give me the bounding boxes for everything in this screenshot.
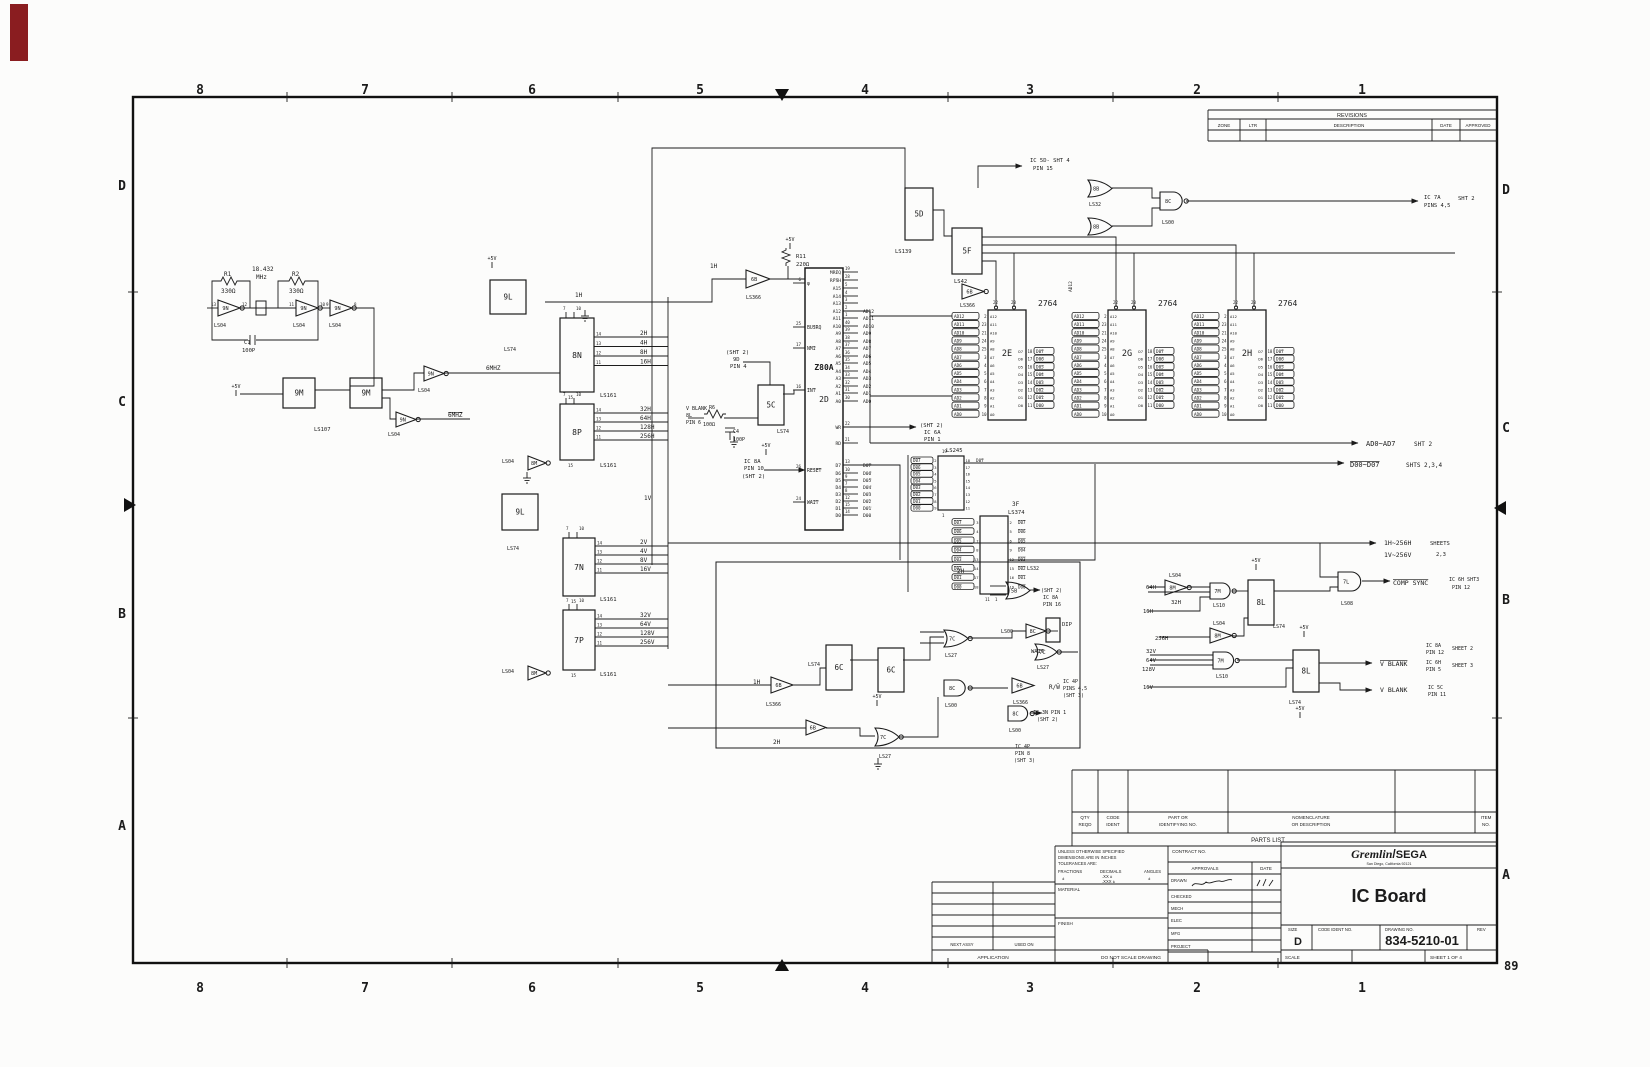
z80-r-A15: A15	[833, 286, 842, 292]
gate-8C-nand: 8C	[1160, 192, 1188, 210]
ic-ref-6C: 6C	[886, 666, 895, 675]
addr-2E-AD9: AD9	[954, 338, 962, 344]
addr-2E-AD11: AD11	[954, 322, 965, 328]
sheet-label: SHEET 1 OF 4	[1430, 955, 1462, 961]
wire	[350, 308, 374, 386]
pin-2E-9: 9	[984, 404, 987, 409]
gate-8B-or: 8B	[1088, 180, 1112, 197]
pinlabel-2E-A4: A4	[990, 379, 995, 384]
pinlabel-2H-D1: D1	[1258, 395, 1263, 400]
addr-2G-AD3: AD3	[1074, 387, 1082, 393]
z80-r-D3: D3	[835, 492, 841, 498]
contract-label: CONTRACT NO.	[1172, 849, 1206, 854]
pin-2G-23: 23	[1102, 322, 1107, 327]
gate-ref-7L: 7L	[1343, 580, 1349, 586]
label--sht-2-: (SHT 2)	[742, 474, 765, 480]
ls245-pin-14: 14	[966, 485, 971, 490]
z80-r-A11: A11	[833, 316, 842, 322]
label-128v: 128V	[1142, 667, 1156, 673]
pin-2E-25: 25	[982, 347, 987, 352]
z80-pin-12: 12	[845, 495, 850, 500]
gate-8M-inv: 8M	[528, 456, 550, 470]
z80-pin-37: 37	[845, 342, 850, 347]
label-dip: DIP	[1062, 622, 1073, 628]
gate-body	[296, 300, 318, 316]
z80-bus-D05: D05	[863, 478, 872, 484]
tolerance-angles-pm: ±	[1148, 876, 1151, 881]
z80-pin-1: 1	[845, 312, 848, 317]
label-ls74: LS74	[504, 347, 516, 353]
pin-2E-15: 15	[1028, 372, 1033, 377]
pinlabel-2H-A8: A8	[1230, 347, 1235, 352]
zone-top-6: 6	[528, 83, 536, 98]
z80-pin-25: 25	[796, 321, 802, 326]
pinlabel-2G-A5: A5	[1110, 371, 1115, 376]
ls245-pin-16: 16	[966, 472, 971, 477]
ls374-pin-11: 11	[985, 597, 990, 602]
label-2764: 2764	[1278, 299, 1297, 308]
gate-bubble	[1235, 658, 1239, 662]
label-ic-6h-sht3: IC 6H SHT3	[1449, 577, 1479, 583]
gate-ref-8B: 8B	[1093, 187, 1099, 193]
pin-7N-11: 11	[597, 568, 603, 573]
ls245-l-D02: D02	[913, 492, 921, 497]
label-pin-6: PIN 6	[686, 420, 701, 426]
tolerance-angles: ANGLES	[1144, 869, 1161, 874]
frame-arrow-top	[775, 89, 789, 101]
data-2G-D07: D07	[1156, 349, 1164, 355]
z80-bus-AD3: AD3	[863, 376, 872, 382]
z80-pin-16: 16	[796, 384, 802, 389]
pin-2G-2: 2	[1104, 314, 1107, 319]
label-pin-16: PIN 16	[1043, 602, 1061, 608]
data-2H-D05: D05	[1276, 364, 1284, 370]
z80-pin-14: 14	[845, 509, 850, 514]
ls374-pin-4: 4	[976, 529, 979, 534]
z80-pin-13: 13	[845, 459, 850, 464]
data-2E-D06: D06	[1036, 357, 1044, 363]
pin-2G-3: 3	[1104, 355, 1107, 360]
addr-2E-AD0: AD0	[954, 412, 962, 418]
pin-8P-11: 11	[596, 435, 602, 440]
z80-bus-AD12: AD12	[863, 309, 874, 315]
ic-ref-9L: 9L	[515, 508, 525, 517]
addr-2E-AD8: AD8	[954, 347, 962, 353]
z80-bus-D06: D06	[863, 471, 872, 477]
ic-ref-8N: 8N	[572, 351, 582, 360]
drawn-date-mark	[1257, 879, 1273, 886]
ls374-pin-13: 13	[974, 557, 979, 562]
pinlabel-2G-D3: D3	[1138, 380, 1143, 385]
pinlabel-2G-D2: D2	[1138, 388, 1143, 393]
label-pin-10: PIN 10	[744, 466, 764, 472]
label-330-: 330Ω	[221, 288, 236, 295]
z80-pin-36: 36	[845, 350, 850, 355]
label-mhz: MHz	[256, 274, 267, 281]
label-ls27: LS27	[879, 754, 891, 760]
gate-body	[771, 677, 793, 693]
ls245-l-D04: D04	[913, 478, 921, 483]
ls245-l-D00: D00	[913, 506, 921, 511]
label--sht-2-: (SHT 2)	[1041, 588, 1062, 594]
z80-bus-D02: D02	[863, 499, 872, 505]
label-3f: 3F	[1012, 501, 1020, 508]
label-256h: 256H	[1155, 636, 1168, 642]
gate-8C-nand: 8C	[944, 680, 972, 696]
gate-7M-nand: 7M	[1210, 583, 1236, 599]
gate-8M-inv: 8M	[1210, 628, 1236, 643]
gate-ref-8M: 8M	[531, 461, 537, 467]
data-2G-D06: D06	[1156, 357, 1164, 363]
addr-2G-AD11: AD11	[1074, 322, 1085, 328]
row-mfg: MFG	[1171, 931, 1180, 936]
label-ls74: LS74	[1289, 700, 1301, 706]
pin-2H-8: 8	[1224, 396, 1227, 401]
ic-ref-6C: 6C	[834, 663, 843, 672]
pinlabel-2E-D0: D0	[1018, 403, 1023, 408]
ic-box	[1046, 618, 1060, 642]
pinlabel-2H-A6: A6	[1230, 363, 1235, 368]
pinlabel-2H-D3: D3	[1258, 380, 1263, 385]
gate-ref-8C: 8C	[1165, 199, 1171, 205]
label-pin-12: PIN 12	[1426, 650, 1444, 656]
pin-2H-5: 5	[1224, 371, 1227, 376]
label-c1: C1	[244, 340, 251, 346]
label-ic-8a: IC 8A	[1426, 643, 1441, 649]
label-8l: 8L	[686, 413, 692, 419]
pin-2G-6: 6	[1104, 379, 1107, 384]
ls245-l-D03: D03	[913, 485, 921, 490]
data-2H-D06: D06	[1276, 357, 1284, 363]
label-pin-15: PIN 15	[1033, 166, 1053, 172]
pin-7P-7: 7	[566, 598, 569, 603]
ls374-pin-18: 18	[974, 584, 979, 589]
label-ls366: LS366	[1013, 700, 1028, 706]
label-2h: 2H	[773, 739, 781, 746]
pinlabel-2G-A8: A8	[1110, 347, 1115, 352]
label-ls74: LS74	[777, 429, 789, 435]
approvals-date-label: DATE	[1260, 866, 1272, 871]
pinlabel-2G-D4: D4	[1138, 372, 1143, 377]
z80-pin-34: 34	[845, 365, 850, 370]
ls245-pin-5: 5	[934, 478, 936, 483]
pin-8N-7: 7	[563, 306, 566, 311]
pinlabel-2E-A10: A10	[990, 330, 998, 335]
pin-2G-9: 9	[1104, 404, 1107, 409]
pinlabel-2H-A7: A7	[1230, 355, 1235, 360]
pin-2E-2: 2	[984, 314, 987, 319]
pin-8P-7: 7	[563, 392, 566, 397]
z80-bus-AD8: AD8	[863, 339, 872, 345]
label-ic-7a: IC 7A	[1424, 195, 1441, 201]
pinlabel-2E-A9: A9	[990, 338, 995, 343]
addr-2G-AD8: AD8	[1074, 347, 1082, 353]
zone-left-A: A	[118, 819, 126, 834]
supply-5v: +5V	[487, 256, 496, 262]
pin-7N-13: 13	[597, 550, 603, 555]
signal-16V: 16V	[640, 566, 651, 573]
label-pin-12: PIN 12	[1452, 585, 1470, 591]
label-ls32: LS32	[1089, 202, 1101, 208]
pin-2G-25: 25	[1102, 347, 1107, 352]
wire	[968, 631, 1026, 638]
gate-7M-nand: 7M	[1213, 652, 1239, 669]
pinlabel-2G-D5: D5	[1138, 364, 1143, 369]
parts-col-item-2: NO.	[1482, 822, 1490, 827]
gate-9N-inv: 9N	[218, 300, 244, 316]
ic-ref-2d: 2D	[819, 395, 829, 404]
pin-2G-12: 12	[1148, 395, 1153, 400]
label-pin-11: PIN 11	[1428, 692, 1446, 698]
signal-32H: 32H	[640, 406, 651, 413]
gate-ref-6B: 6B	[966, 290, 972, 296]
gate-body	[1088, 218, 1112, 235]
next-assy-label: NEXT ASSY	[950, 942, 973, 947]
pin-2E-17: 17	[1028, 357, 1033, 362]
pinlabel-2H-A5: A5	[1230, 371, 1235, 376]
ls245-right-label: D07	[976, 458, 984, 464]
label-6mhz: 6MHZ	[448, 412, 463, 419]
signal-32V: 32V	[640, 612, 651, 619]
label-64h: 64H	[1146, 585, 1156, 591]
tolerance-line-3: TOLERANCES ARE:	[1058, 861, 1097, 866]
pin-8N-11: 11	[596, 360, 602, 365]
do-not-scale-label: DO NOT SCALE DRAWING	[1101, 955, 1161, 961]
pin-2H-4: 4	[1224, 363, 1227, 368]
pinlabel-2H-A0: A0	[1230, 412, 1235, 417]
title-block: QTY REQD CODE IDENT PART OR IDENTIFYING …	[932, 770, 1497, 963]
ls245-pin-2: 2	[934, 458, 936, 463]
tolerance-pm: ±	[1062, 876, 1065, 881]
pinlabel-2G-A3: A3	[1110, 387, 1115, 392]
data-2H-D07: D07	[1276, 349, 1284, 355]
zone-bottom-4: 4	[861, 981, 869, 996]
wire	[668, 279, 746, 302]
z80-l-RESET: RESET	[807, 468, 822, 474]
pinlabel-2G-A6: A6	[1110, 363, 1115, 368]
ic-ref-8P: 8P	[572, 428, 582, 437]
wire	[278, 281, 286, 308]
zone-right-B: B	[1502, 593, 1510, 608]
label-220-: 220Ω	[796, 262, 810, 268]
addr-2E-AD12: AD12	[954, 314, 965, 320]
addr-2G-AD6: AD6	[1074, 363, 1082, 369]
pin-2E-8: 8	[984, 396, 987, 401]
label-sht-2: SHT 2	[1414, 441, 1432, 448]
pin-8P-12: 12	[596, 426, 602, 431]
company-logo: Gremlin/SEGA	[1351, 847, 1427, 861]
z80-r-A14: A14	[833, 294, 842, 300]
label-ls00: LS00	[945, 703, 957, 709]
label-ls04: LS04	[1169, 573, 1181, 579]
revisions-title: REVISIONS	[1337, 113, 1367, 119]
pin-7P-13: 13	[597, 623, 603, 628]
pin-2E-13: 13	[1028, 388, 1033, 393]
addr-2G-AD2: AD2	[1074, 396, 1082, 402]
label-330-: 330Ω	[289, 288, 304, 295]
label--sht-3-: (SHT 3)	[1014, 758, 1035, 764]
pinlabel-2H-A9: A9	[1230, 338, 1235, 343]
addr-2H-AD11: AD11	[1194, 322, 1205, 328]
pin-2H-ce: 20	[1251, 300, 1257, 305]
gate-ref-8M: 8M	[531, 671, 537, 677]
z80-pin-35: 35	[845, 357, 850, 362]
label-comp-sync: COMP SYNC	[1393, 579, 1428, 587]
pinlabel-2G-A12: A12	[1110, 314, 1117, 319]
gate-ref-7M: 7M	[1214, 589, 1220, 595]
parts-col-code-2: IDENT	[1106, 822, 1120, 827]
z80-r-A8: A8	[835, 339, 841, 345]
z80-bus-AD6: AD6	[863, 354, 872, 360]
label-ls04: LS04	[502, 669, 514, 675]
ls374-pin-5: 5	[1010, 529, 1012, 534]
label-ls04: LS04	[388, 432, 400, 438]
label-16h: 16H	[1143, 609, 1153, 615]
pinlabel-2E-A8: A8	[990, 347, 995, 352]
resistor	[782, 248, 790, 266]
pinlabel-2H-D0: D0	[1258, 403, 1263, 408]
pin-7N-10: 10	[579, 526, 585, 531]
gate-ref-6B: 6B	[751, 277, 757, 283]
z80-r-A12: A12	[833, 309, 842, 315]
schematic-content: 9M9M9L9L5C5D5F6C6C8L8L9N9N9N9N9N8M8M6B6B…	[207, 148, 1479, 769]
pin-2G-21: 21	[1102, 330, 1107, 335]
gate-8B-or: 8B	[1088, 218, 1112, 235]
signal-4V: 4V	[640, 548, 648, 555]
signal-128H: 128H	[640, 424, 655, 431]
supply-5v: +5V	[1295, 706, 1304, 712]
label-ad12: AD12	[1068, 281, 1074, 292]
pin-2E-11: 11	[1028, 403, 1033, 408]
label-pins-4-5: PINS 4,5	[1424, 203, 1451, 209]
z80-bus-D03: D03	[863, 492, 872, 498]
data-2G-D01: D01	[1156, 395, 1164, 401]
group-outline	[716, 562, 1080, 748]
zone-bottom-3: 3	[1026, 981, 1034, 996]
pinlabel-2H-D5: D5	[1258, 364, 1263, 369]
gate-9N-inv: 9N	[330, 300, 356, 316]
label-ls139: LS139	[895, 249, 912, 255]
wire	[826, 728, 875, 736]
parts-col-item-1: ITEM	[1481, 815, 1492, 820]
resistor	[286, 277, 308, 285]
addr-2E-AD3: AD3	[954, 387, 962, 393]
gate-ref-8M: 8M	[1214, 634, 1220, 640]
wire	[793, 668, 826, 685]
addr-2H-AD12: AD12	[1194, 314, 1205, 320]
pin-2E-23: 23	[982, 322, 987, 327]
wire	[1112, 188, 1160, 198]
schematic-sheet: { "frame": { "zones_top": ["8","7","6","…	[0, 0, 1650, 1067]
label-v-blank: V BLANK	[1380, 660, 1407, 668]
z80-r-A9: A9	[835, 331, 841, 337]
addr-2G-AD12: AD12	[1074, 314, 1085, 320]
gate-ref-8B: 8B	[1093, 225, 1099, 231]
gate-ref-9N: 9N	[334, 306, 340, 312]
z80-l-BUSRQ: BUSRQ	[807, 325, 822, 331]
pin-2H-13: 13	[1268, 388, 1273, 393]
z80-l-NMI: NMI	[807, 346, 816, 352]
ls374-l-D04: D04	[954, 548, 962, 553]
ls374-pin-3: 3	[976, 520, 978, 525]
z80-pin-15: 15	[845, 502, 850, 507]
addr-2H-AD8: AD8	[1194, 347, 1202, 353]
pin-2E-12: 12	[1028, 395, 1033, 400]
supply-5v: +5V	[761, 443, 770, 449]
z80-pin-7: 7	[845, 481, 848, 486]
addr-2H-AD4: AD4	[1194, 379, 1202, 385]
size-value: D	[1294, 936, 1302, 948]
wire	[899, 697, 938, 737]
gate-ref-7C: 7C	[880, 735, 886, 741]
label-ls04: LS04	[329, 323, 341, 329]
z80-l-INT: INT	[807, 388, 816, 394]
data-2H-D04: D04	[1276, 372, 1284, 378]
wire	[933, 210, 952, 236]
ic-ref-2H: 2H	[1242, 349, 1252, 359]
ls374-r-D00: D00	[1018, 584, 1026, 589]
gate-8C-nand: 8C	[1008, 706, 1034, 721]
z80-r-D6: D6	[835, 471, 841, 477]
z80-l-WAIT: WAIT	[807, 500, 819, 506]
revisions-col-approved: APPROVED	[1465, 123, 1491, 128]
parts-col-qty-2: REQD	[1078, 822, 1092, 827]
zone-left-B: B	[118, 607, 126, 622]
zone-top-4: 4	[861, 83, 869, 98]
pinlabel-2E-A3: A3	[990, 387, 995, 392]
label-1h: 1H	[710, 263, 718, 270]
zone-top-2: 2	[1193, 83, 1201, 98]
pinlabel-2G-A2: A2	[1110, 396, 1115, 401]
pin-2H-14: 14	[1268, 380, 1273, 385]
addr-2G-AD9: AD9	[1074, 338, 1082, 344]
pin-2H-9: 9	[1224, 404, 1227, 409]
wire	[1274, 587, 1338, 591]
pin-2E-3: 3	[984, 355, 987, 360]
gate-body	[746, 270, 770, 288]
pin-2G-15: 15	[1148, 372, 1153, 377]
pin-2H-12: 12	[1268, 395, 1273, 400]
label-ls04: LS04	[293, 323, 305, 329]
pin-7P-15: 15	[571, 673, 577, 678]
label-1v: 1V	[644, 495, 652, 502]
wire	[743, 362, 770, 385]
data-2H-D01: D01	[1276, 395, 1284, 401]
zone-bottom-5: 5	[696, 981, 704, 996]
ls374-r-D05: D05	[1018, 538, 1026, 543]
gate-6B-inv: 6B	[962, 284, 988, 299]
pin-2H-15: 15	[1268, 372, 1273, 377]
pin-2G-oe: 22	[1113, 300, 1119, 305]
addr-2E-AD2: AD2	[954, 396, 962, 402]
pin-2E-6: 6	[984, 379, 987, 384]
zone-top-7: 7	[361, 83, 369, 98]
gate-7C-nor: 7C	[875, 728, 903, 746]
pinlabel-2E-A11: A11	[990, 322, 998, 327]
company-subtitle: San Diego, California 92121	[1367, 862, 1412, 866]
label-16v: 16V	[1143, 685, 1154, 691]
label-r6: R6	[709, 405, 715, 411]
ic-ref-9M: 9M	[294, 389, 304, 398]
drawing-no-label: DRAWING NO.	[1385, 927, 1414, 932]
z80-r-A5: A5	[835, 361, 841, 367]
pin-2H-2: 2	[1224, 314, 1227, 319]
label--sht-3-: (SHT 3)	[1063, 693, 1084, 699]
drawing-no-value: 834-5210-01	[1385, 933, 1459, 948]
ls374-l-D03: D03	[954, 557, 962, 562]
addr-2E-AD6: AD6	[954, 363, 962, 369]
pin-2G-11: 11	[1148, 403, 1153, 408]
